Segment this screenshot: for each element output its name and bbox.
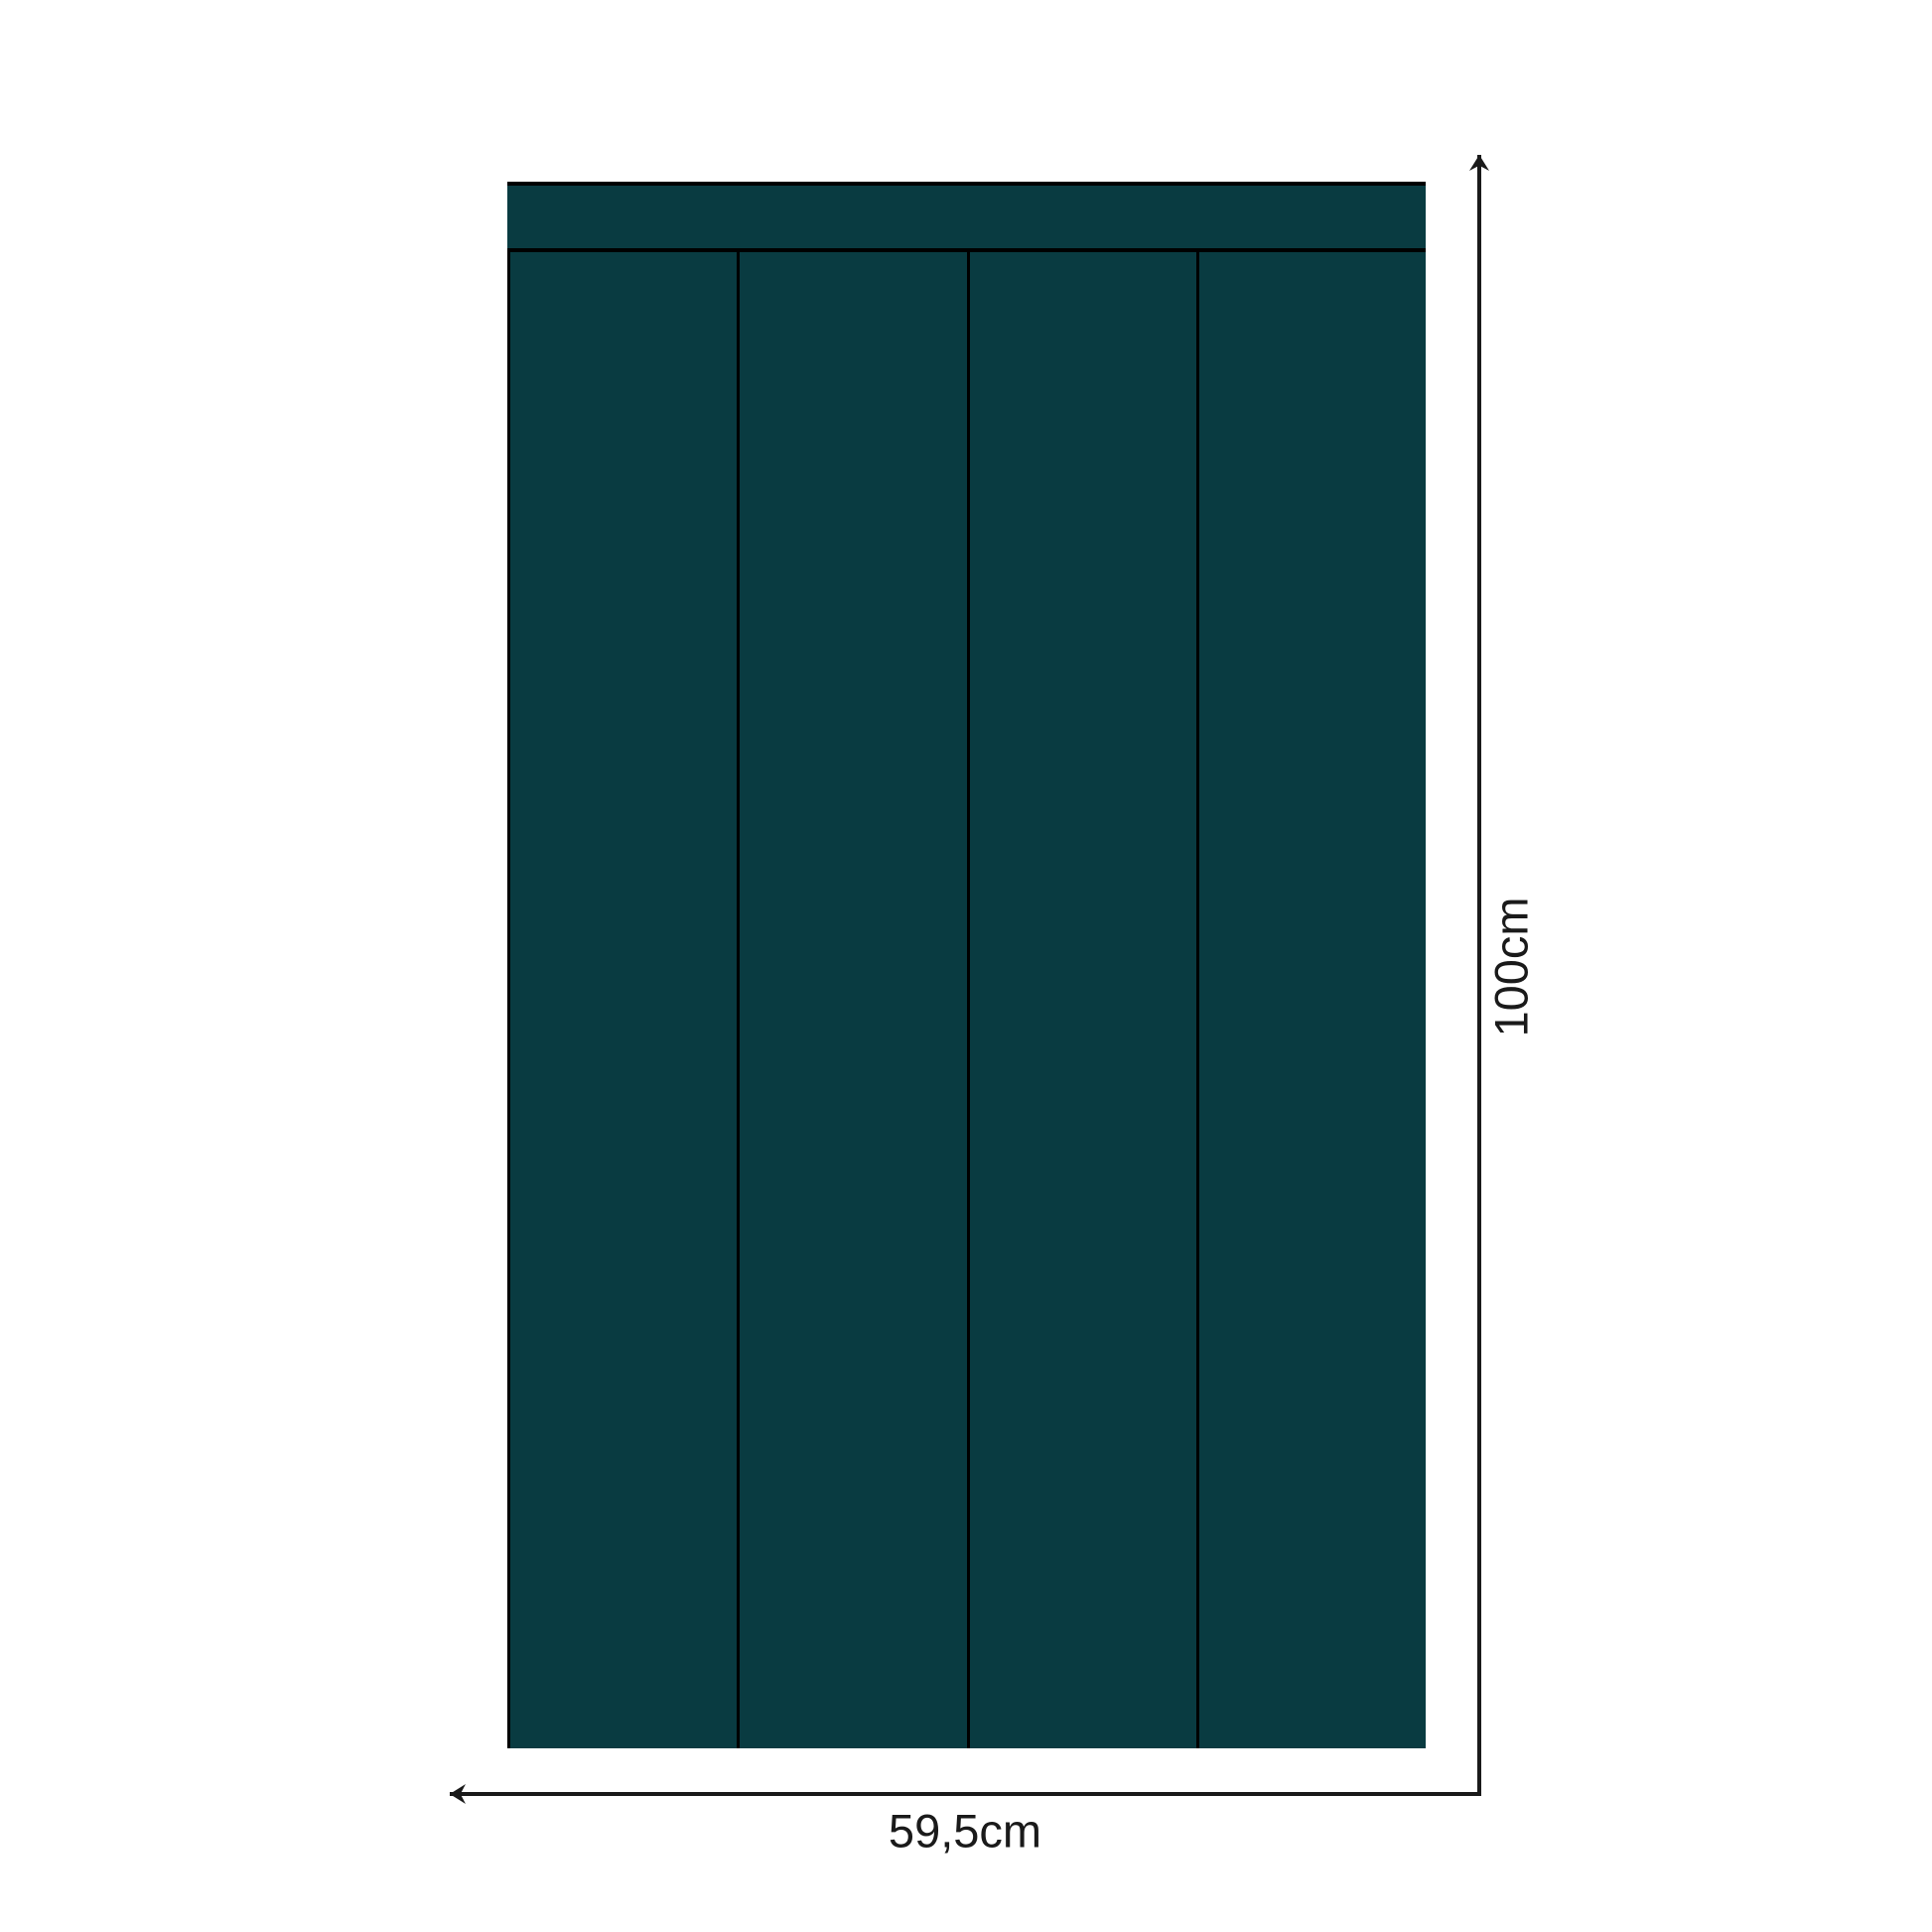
diagram-canvas: 59,5cm 100cm [0,0,1932,1932]
panel-4 [1196,252,1426,1748]
panel-2 [737,252,966,1748]
height-dimension-label: 100cm [1488,897,1535,1036]
width-dimension-label: 59,5cm [889,1808,1041,1855]
panel-3 [967,252,1196,1748]
panel-group [507,252,1426,1748]
panel-1 [507,252,737,1748]
panel-top-rail [507,182,1426,252]
